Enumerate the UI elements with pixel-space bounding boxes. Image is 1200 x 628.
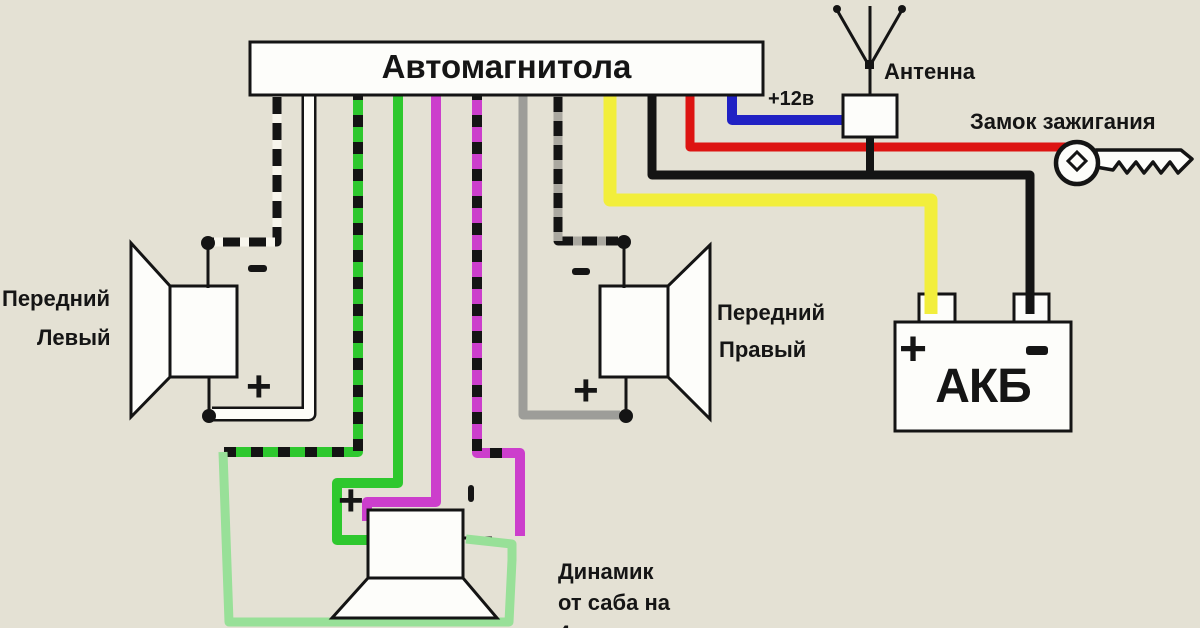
speaker-cone xyxy=(668,245,710,419)
front-left-speaker-icon xyxy=(131,236,237,423)
sub-rear-right-striped-wire xyxy=(477,88,512,453)
battery-label: АКБ xyxy=(895,362,1071,412)
front-right-label-line1: Передний xyxy=(717,301,825,324)
terminal-dot-plus xyxy=(619,409,633,423)
sub-speaker-icon xyxy=(332,510,497,618)
antenna-label: Антенна xyxy=(884,60,975,83)
plus12v-label: +12в xyxy=(768,89,814,110)
front-left-label-line1: Передний xyxy=(2,287,110,310)
front-right-minus-label xyxy=(572,268,590,275)
antenna-junction xyxy=(865,60,874,69)
front-left-minus-wire xyxy=(212,88,277,242)
sub-rear-right-striped-wire-drop xyxy=(508,453,520,536)
terminal-dot-minus xyxy=(201,236,215,250)
key-blade xyxy=(1096,150,1192,173)
antenna-arm-left xyxy=(837,10,868,64)
sub-plus-label: + xyxy=(338,478,364,524)
front-left-label-line2: Левый xyxy=(37,326,111,349)
front-left-plus-label: + xyxy=(246,364,272,410)
sub-rear-left-green-wire xyxy=(337,88,398,540)
head-unit-title: Автомагнитола xyxy=(250,50,763,85)
ignition-label: Замок зажигания xyxy=(970,110,1156,133)
diagram-canvas xyxy=(0,0,1200,628)
speaker-magnet xyxy=(170,286,237,377)
speaker-magnet xyxy=(600,286,668,377)
terminal-dot-plus xyxy=(202,409,216,423)
sub-caption-line2: от саба на xyxy=(558,591,670,614)
front-right-plus-label: + xyxy=(573,368,599,414)
battery-minus-label xyxy=(1026,346,1048,355)
front-left-minus-label xyxy=(248,265,267,272)
sub-rear-left-striped-wire xyxy=(224,88,358,452)
antenna-arm-tip xyxy=(833,5,841,13)
sub-minus-tick xyxy=(468,485,474,502)
front-right-label-line2: Правый xyxy=(719,338,806,361)
sub-caption-line1: Динамик xyxy=(558,560,654,583)
antenna-arm-right xyxy=(871,10,902,64)
ignition-key-icon xyxy=(1056,142,1192,184)
speaker-magnet xyxy=(368,510,463,578)
speaker-cone xyxy=(131,243,170,417)
front-left-minus-wire xyxy=(212,88,277,242)
terminal-dot-minus xyxy=(617,235,631,249)
sub-caption-line3: 4 ома xyxy=(558,622,618,628)
sub-rear-left-striped-wire xyxy=(224,88,358,452)
sub-rear-right-striped-wire xyxy=(477,88,512,453)
speaker-cone xyxy=(332,578,497,618)
wiring-diagram: Автомагнитола Антенна +12в Замок зажиган… xyxy=(0,0,1200,628)
antenna-arm-tip xyxy=(898,5,906,13)
antenna-amplifier-box xyxy=(843,95,897,137)
front-right-speaker-icon xyxy=(600,235,710,423)
